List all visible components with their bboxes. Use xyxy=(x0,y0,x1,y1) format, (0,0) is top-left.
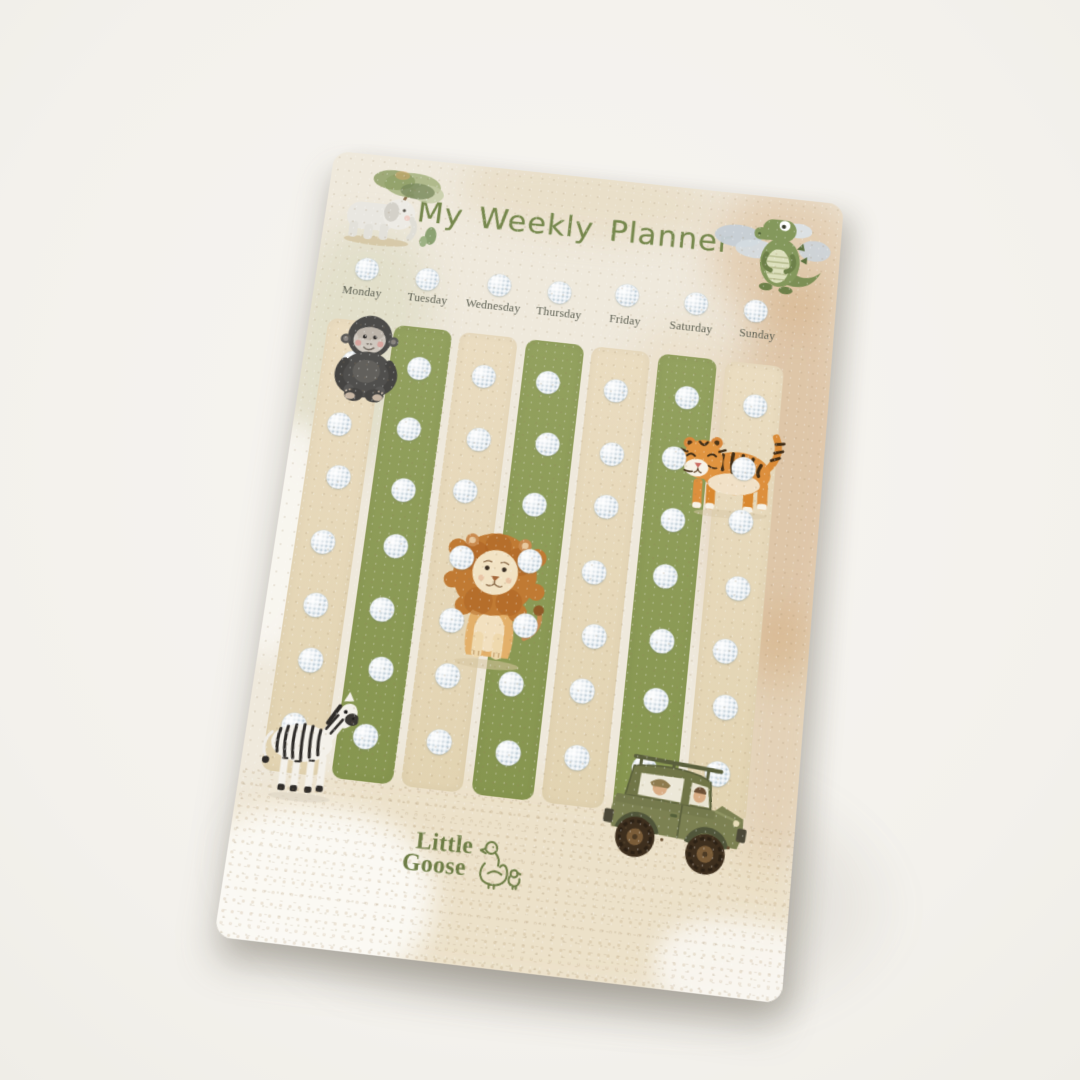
little-goose-logo: Little Goose xyxy=(400,828,526,893)
day-label-monday: Monday xyxy=(341,283,382,301)
day-label-friday: Friday xyxy=(608,312,641,329)
lion-sticker xyxy=(427,516,557,679)
safari-jeep-sticker xyxy=(585,736,763,902)
zebra-sticker xyxy=(251,678,362,809)
weekly-planner-board: My Weekly Planner xyxy=(214,151,844,1004)
board-title: My Weekly Planner xyxy=(406,194,742,261)
day-label-saturday: Saturday xyxy=(669,318,713,336)
velcro-dot xyxy=(487,273,513,297)
logo-text: Little Goose xyxy=(401,828,475,880)
velcro-dot xyxy=(354,257,380,281)
velcro-dot xyxy=(414,267,440,291)
product-photo-scene: My Weekly Planner xyxy=(0,0,1080,1080)
goose-icon xyxy=(473,837,526,893)
velcro-dot xyxy=(547,281,573,305)
day-label-sunday: Sunday xyxy=(739,326,776,344)
velcro-dot xyxy=(615,283,640,307)
gorilla-sticker xyxy=(319,303,415,413)
logo-line2: Goose xyxy=(401,850,472,879)
day-label-thursday: Thursday xyxy=(536,304,583,323)
day-label-wednesday: Wednesday xyxy=(465,296,521,316)
elephant-with-tree-sticker xyxy=(327,162,447,262)
crocodile-with-clouds-sticker xyxy=(705,203,834,309)
day-label-tuesday: Tuesday xyxy=(406,290,448,308)
